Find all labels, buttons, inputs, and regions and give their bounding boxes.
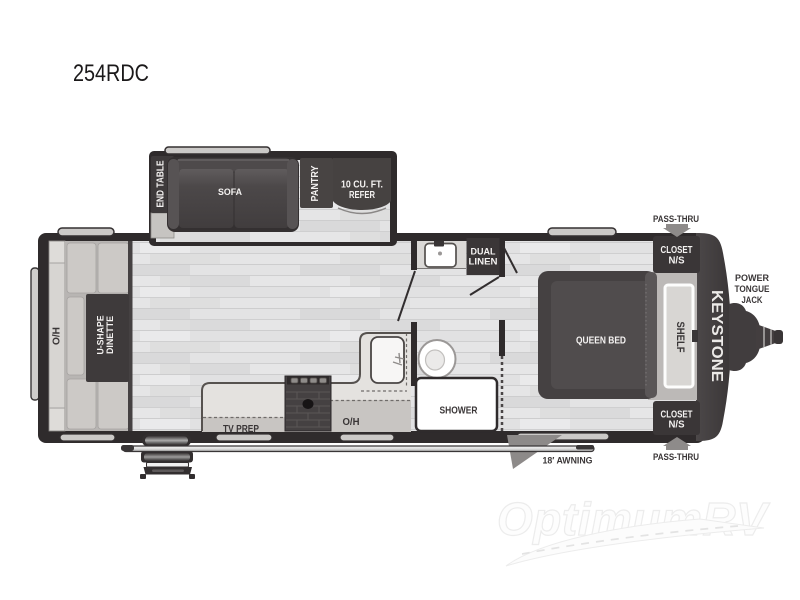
svg-text:PANTRY: PANTRY: [310, 165, 321, 201]
svg-text:END TABLE: END TABLE: [156, 160, 167, 207]
svg-text:KEYSTONE: KEYSTONE: [708, 290, 725, 382]
svg-text:PASS-THRU: PASS-THRU: [653, 452, 699, 463]
svg-text:QUEEN BED: QUEEN BED: [576, 335, 626, 346]
svg-text:O/H: O/H: [343, 417, 360, 428]
svg-text:N/S: N/S: [669, 419, 685, 430]
svg-text:TONGUE: TONGUE: [735, 284, 770, 295]
svg-text:REFER: REFER: [349, 190, 376, 201]
svg-text:SHELF: SHELF: [674, 322, 686, 353]
svg-text:DINETTE: DINETTE: [105, 316, 116, 354]
svg-text:JACK: JACK: [742, 295, 763, 306]
svg-text:N/S: N/S: [669, 255, 685, 266]
svg-text:10 CU. FT.: 10 CU. FT.: [341, 180, 383, 191]
svg-text:18′ AWNING: 18′ AWNING: [543, 456, 593, 467]
svg-text:SHOWER: SHOWER: [440, 406, 479, 417]
svg-text:PASS-THRU: PASS-THRU: [653, 214, 699, 225]
svg-text:254RDC: 254RDC: [73, 60, 149, 87]
svg-text:O/H: O/H: [52, 327, 63, 345]
svg-text:SOFA: SOFA: [218, 187, 242, 198]
svg-text:TV PREP: TV PREP: [223, 424, 259, 435]
svg-text:POWER: POWER: [735, 273, 769, 284]
svg-text:LINEN: LINEN: [469, 257, 498, 268]
